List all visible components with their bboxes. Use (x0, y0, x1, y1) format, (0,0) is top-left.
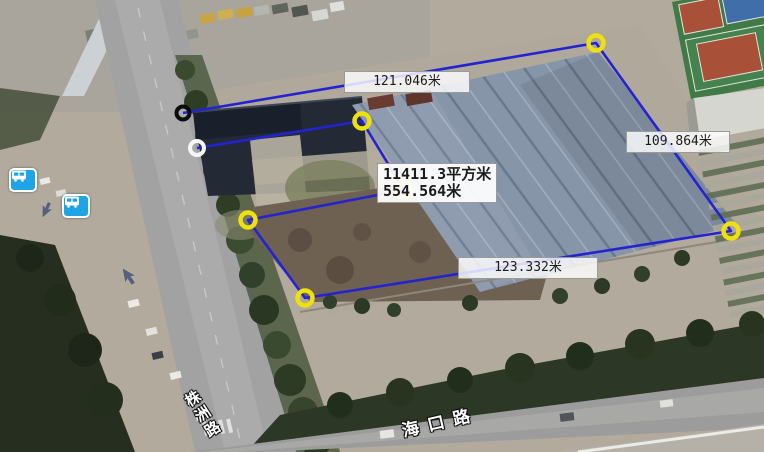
edge-length-label-bottom: 123.332米 (458, 257, 598, 279)
edge-length-label-right: 109.864米 (626, 131, 730, 153)
area-perimeter-label: 11411.3平方米 554.564米 (377, 163, 497, 203)
measurement-overlay (0, 0, 764, 452)
satellite-map-viewport[interactable]: 海口路 株洲路 121.046米 109.864米 123.332米 11411… (0, 0, 764, 452)
area-value: 11411.3平方米 (383, 166, 491, 183)
perimeter-value: 554.564米 (383, 183, 491, 200)
edge-length-label-top: 121.046米 (344, 71, 470, 93)
